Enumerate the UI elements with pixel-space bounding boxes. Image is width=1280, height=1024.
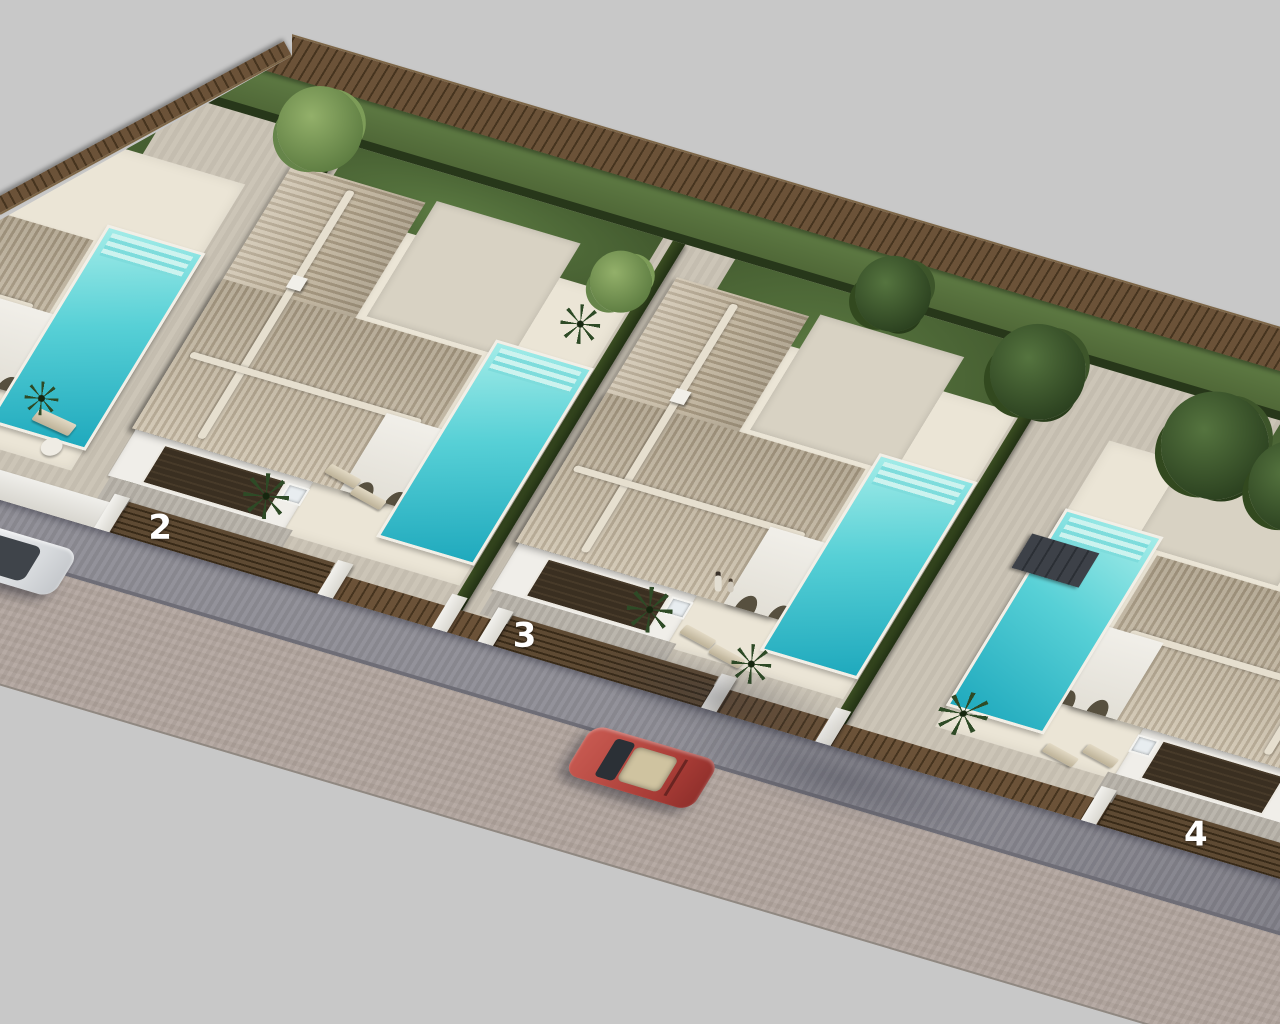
person-child [728,582,734,593]
aerial-render-scene: 2 3 4 [0,0,1280,1024]
white-car-glass [0,533,43,582]
person-adult [715,576,722,592]
